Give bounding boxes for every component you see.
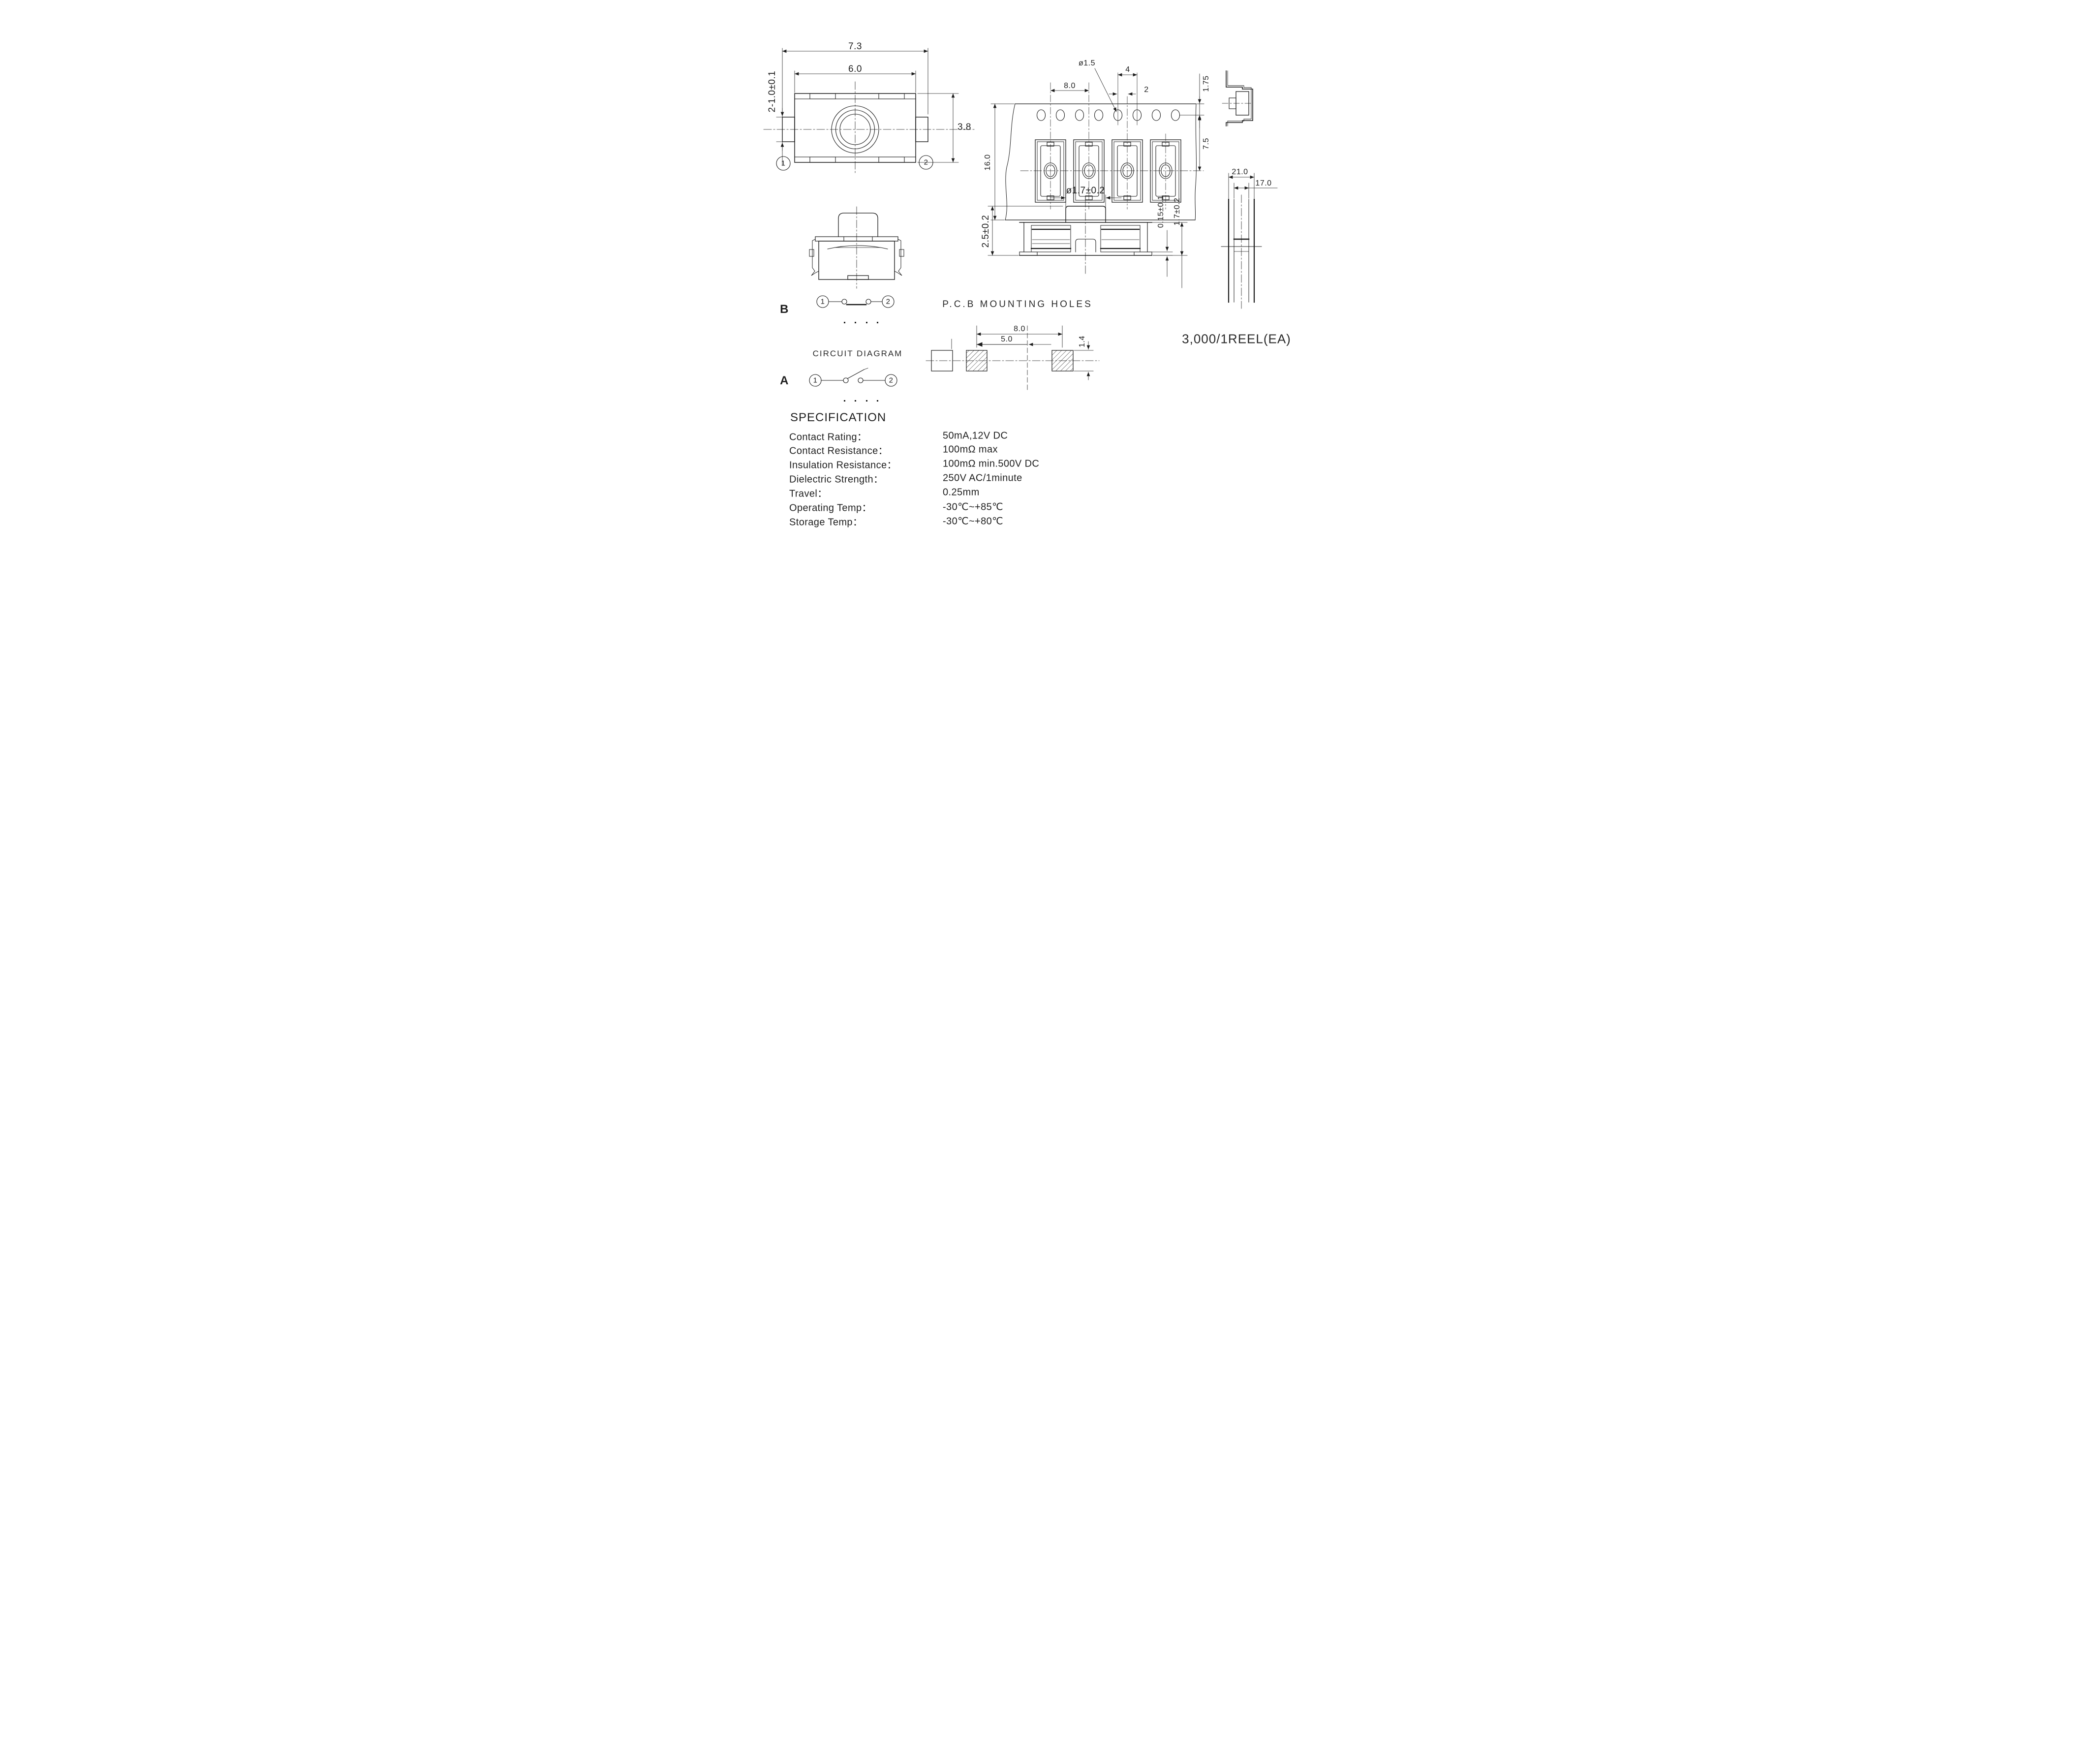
pin-1-label: 1 xyxy=(781,159,786,168)
spec-label-storage-temp: Storage Temp： xyxy=(789,514,863,528)
dim-top-width-inner: 6.0 xyxy=(848,64,862,75)
pin-2-label: 2 xyxy=(924,158,928,167)
dim-section-body: 2.5±0.2 xyxy=(981,215,991,248)
spec-value-dielectric-strength: 250V AC/1minute xyxy=(943,473,1022,484)
circuit-diagram-title: CIRCUIT DIAGRAM xyxy=(813,349,903,359)
dim-reel-outer: 21.0 xyxy=(1232,168,1248,177)
dim-tape-edge: 1.75 xyxy=(1202,75,1211,92)
dim-section-height: 1.7±0.2 xyxy=(1173,198,1182,226)
top-view-drawing xyxy=(764,48,975,174)
pcb-mounting-holes-drawing xyxy=(926,326,1099,391)
spec-value-contact-rating: 50mA,12V DC xyxy=(943,431,1008,442)
dim-pcb-pitch: 8.0 xyxy=(1014,325,1025,334)
tape-section-view-drawing xyxy=(1222,71,1253,126)
reel-view-drawing xyxy=(1221,173,1277,309)
dim-tape-center: 7.5 xyxy=(1202,138,1211,150)
dim-top-terminal: 2-1.0±0.1 xyxy=(767,71,778,113)
dim-tape-pocket-pitch: 8.0 xyxy=(1064,82,1076,91)
circuit-a-pin2: 2 xyxy=(889,376,894,385)
circuit-a-drawing xyxy=(809,368,897,402)
spec-title: SPECIFICATION xyxy=(790,411,886,425)
circuit-b-drawing xyxy=(817,296,894,323)
dim-section-stem: ø1.7±0.2 xyxy=(1066,186,1105,196)
reel-quantity-text: 3,000/1REEL(EA) xyxy=(1182,332,1291,347)
circuit-a-label: A xyxy=(780,374,789,388)
spec-label-insulation-resistance: Insulation Resistance： xyxy=(789,457,897,471)
dim-tape-hole-dia: ø1.5 xyxy=(1079,59,1095,68)
dim-tape-width: 16.0 xyxy=(984,154,992,170)
pcb-mounting-holes-title: P.C.B MOUNTING HOLES xyxy=(942,299,1093,310)
circuit-b-pin1: 1 xyxy=(821,298,825,306)
switch-datasheet-page: 7.3 6.0 3.8 2-1.0±0.1 1 2 ø1.5 8.0 4 2 1… xyxy=(706,0,1394,571)
spec-value-contact-resistance: 100mΩ max xyxy=(943,444,998,456)
spec-value-storage-temp: -30℃~+80℃ xyxy=(943,515,1003,528)
dim-top-width-outer: 7.3 xyxy=(848,41,862,52)
tape-top-view-drawing xyxy=(991,68,1204,220)
dim-top-height: 3.8 xyxy=(957,122,971,133)
spec-label-travel: Travel： xyxy=(789,486,828,500)
spec-value-travel: 0.25mm xyxy=(943,487,980,498)
dim-tape-hole-pitch: 4 xyxy=(1125,65,1130,74)
dim-tape-offset: 2 xyxy=(1144,86,1148,94)
dim-pcb-half: 5.0 xyxy=(1001,335,1013,344)
spec-label-contact-resistance: Contact Resistance： xyxy=(789,443,888,457)
circuit-a-pin1: 1 xyxy=(813,376,818,385)
circuit-b-label: B xyxy=(780,303,789,316)
dim-section-standoff: 0.15±0.1 xyxy=(1157,195,1166,228)
front-view-drawing xyxy=(809,207,904,288)
spec-value-insulation-resistance: 100mΩ min.500V DC xyxy=(943,459,1039,470)
spec-label-contact-rating: Contact Rating： xyxy=(789,429,867,443)
spec-label-operating-temp: Operating Temp： xyxy=(789,500,872,514)
circuit-b-pin2: 2 xyxy=(886,298,891,306)
spec-value-operating-temp: -30℃~+85℃ xyxy=(943,501,1003,513)
spec-label-dielectric-strength: Dielectric Strength： xyxy=(789,471,883,486)
dim-reel-inner: 17.0 xyxy=(1255,179,1271,188)
dim-pcb-pad: 1.4 xyxy=(1078,336,1087,347)
